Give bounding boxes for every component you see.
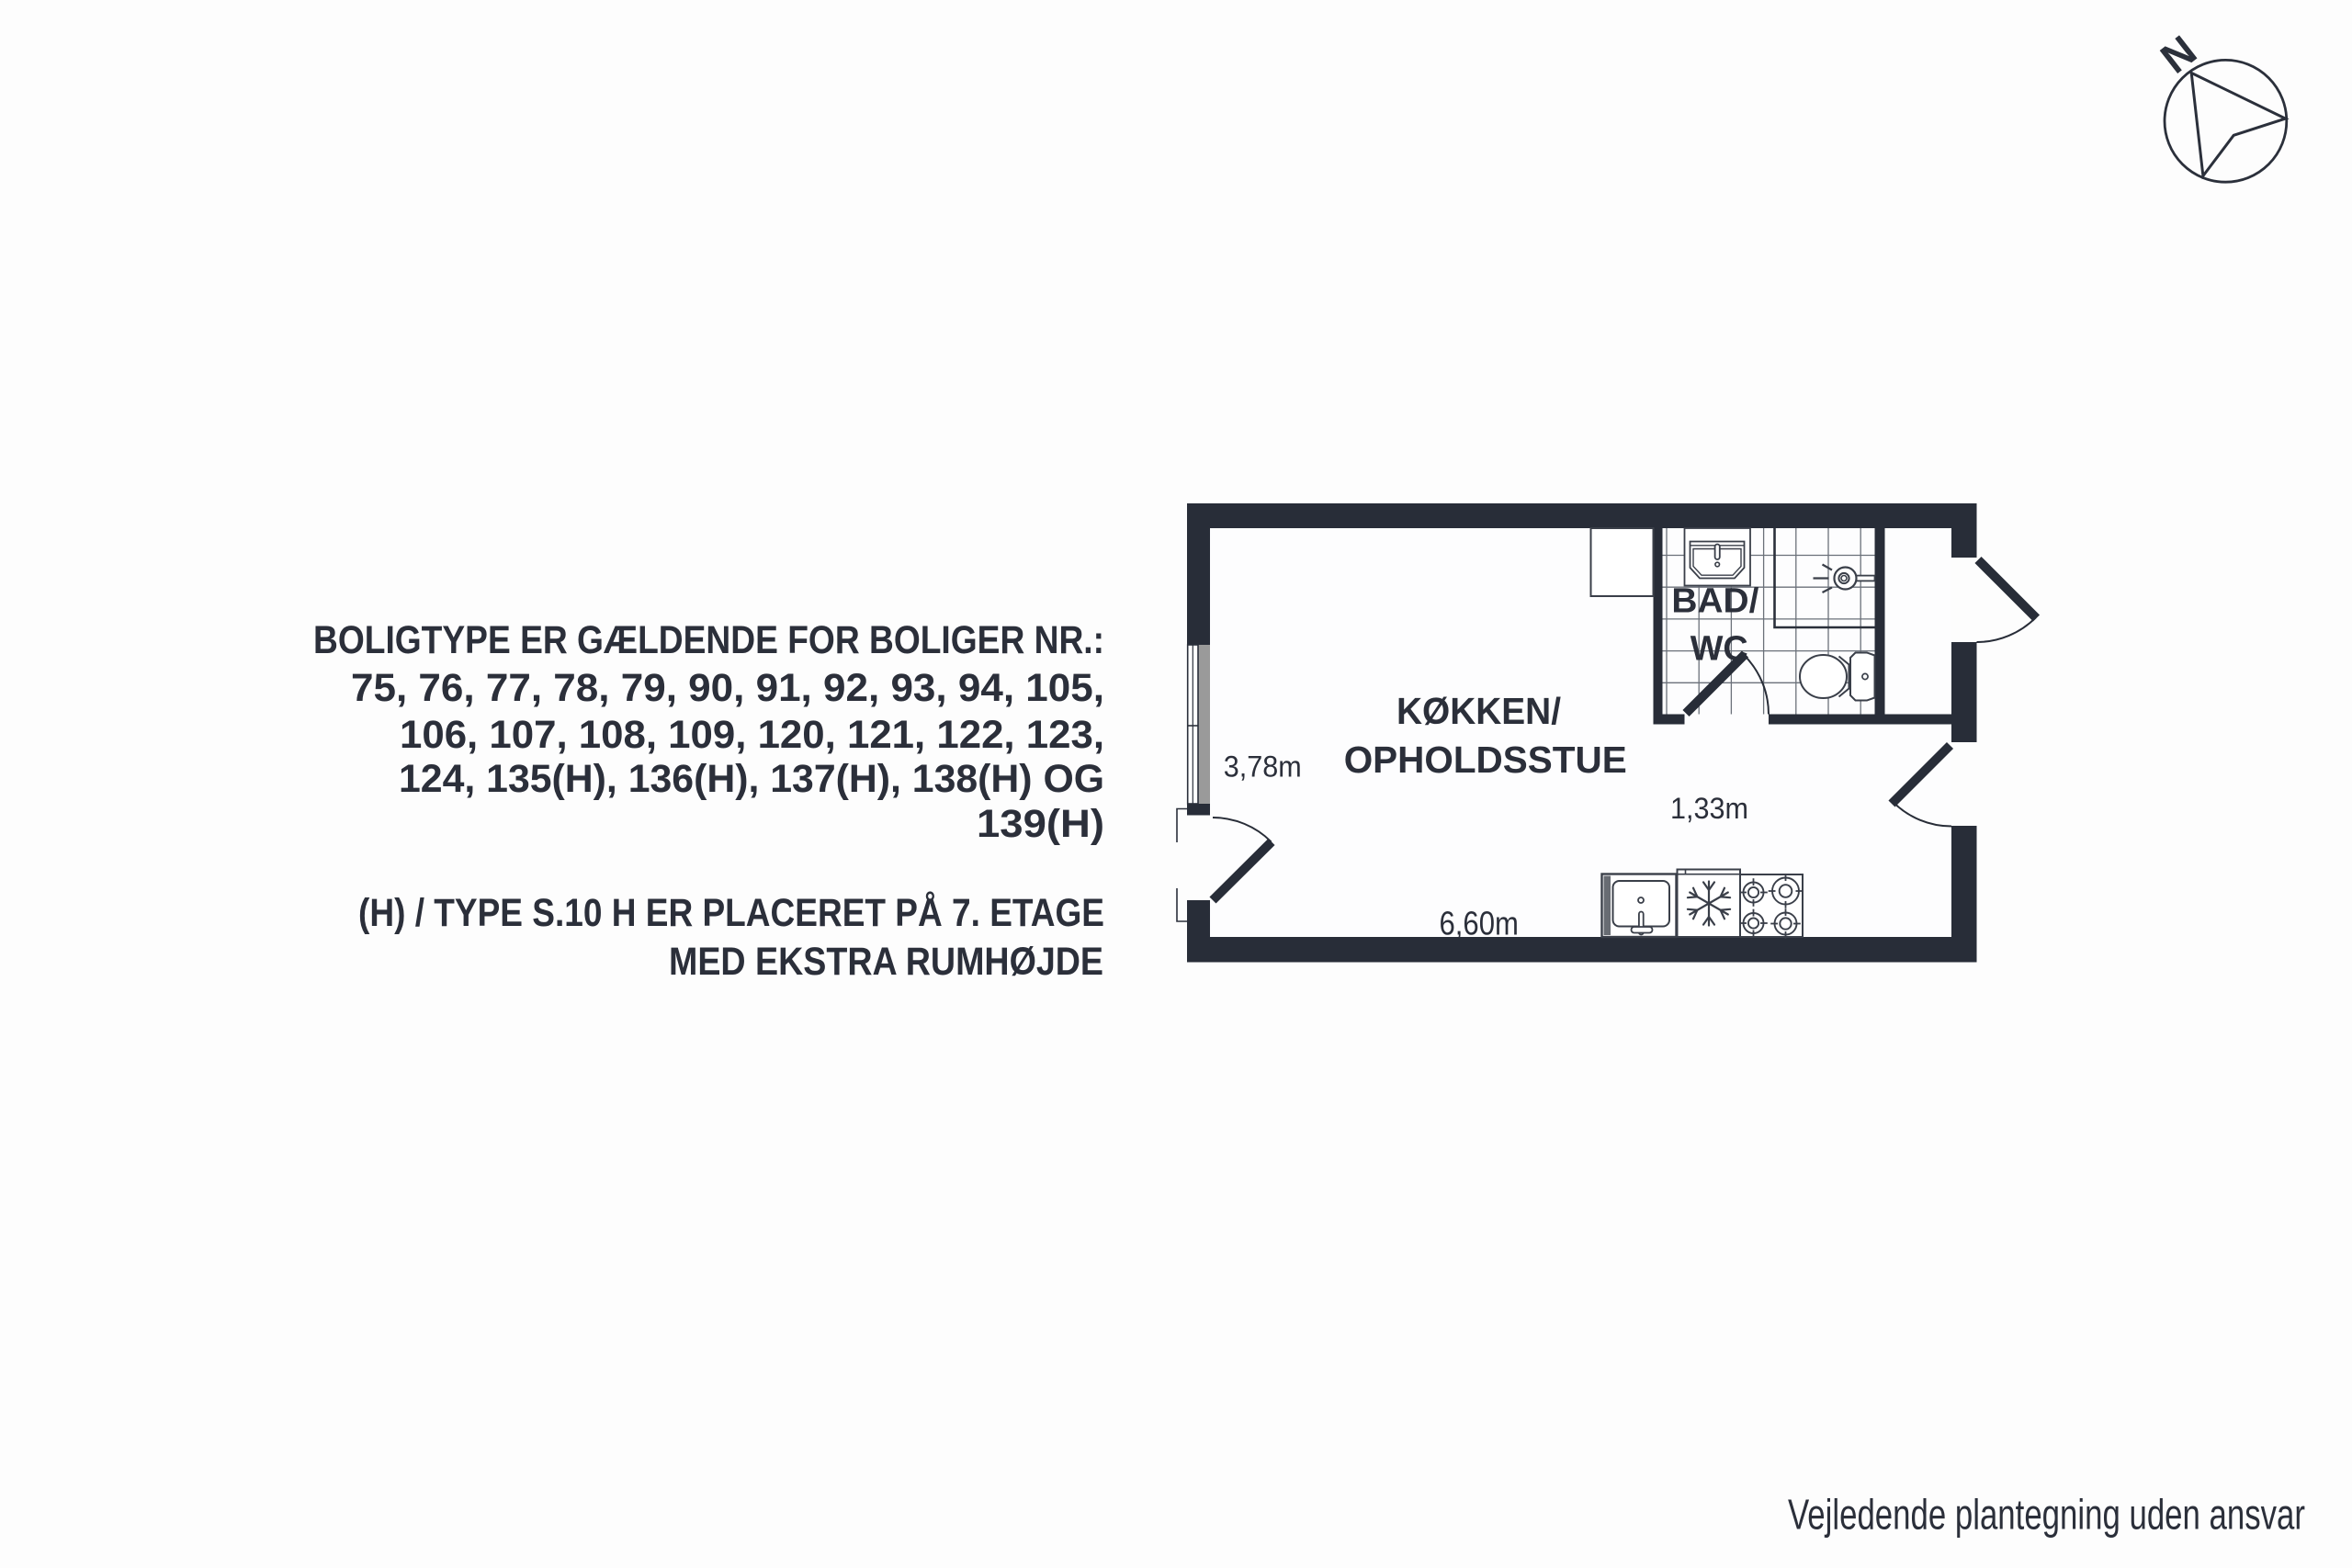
svg-text:N: N bbox=[2152, 26, 2205, 82]
svg-text:OPHOLDSSTUE: OPHOLDSSTUE bbox=[1344, 739, 1627, 781]
svg-text:(H) / TYPE S.10 H ER PLACERET: (H) / TYPE S.10 H ER PLACERET PÅ 7. ETAG… bbox=[358, 891, 1104, 935]
svg-text:MED EKSTRA RUMHØJDE: MED EKSTRA RUMHØJDE bbox=[669, 940, 1103, 984]
svg-text:6,60m: 6,60m bbox=[1440, 905, 1519, 942]
svg-text:Vejledende plantegning uden an: Vejledende plantegning uden ansvar bbox=[1788, 1491, 2305, 1539]
svg-text:KØKKEN/: KØKKEN/ bbox=[1396, 690, 1561, 732]
svg-text:1,33m: 1,33m bbox=[1670, 792, 1748, 825]
svg-text:124, 135(H), 136(H), 137(H), 1: 124, 135(H), 136(H), 137(H), 138(H) OG bbox=[399, 757, 1104, 801]
svg-text:139(H): 139(H) bbox=[977, 802, 1104, 846]
svg-text:106, 107, 108, 109, 120, 121,: 106, 107, 108, 109, 120, 121, 122, 123, bbox=[400, 713, 1104, 757]
svg-text:75, 76, 77, 78, 79, 90, 91, 92: 75, 76, 77, 78, 79, 90, 91, 92, 93, 94, … bbox=[351, 666, 1104, 710]
svg-text:3,78m: 3,78m bbox=[1224, 750, 1302, 784]
svg-text:BAD/: BAD/ bbox=[1671, 582, 1758, 621]
svg-text:BOLIGTYPE ER GÆLDENDE FOR BOLI: BOLIGTYPE ER GÆLDENDE FOR BOLIGER NR.: bbox=[313, 618, 1104, 662]
